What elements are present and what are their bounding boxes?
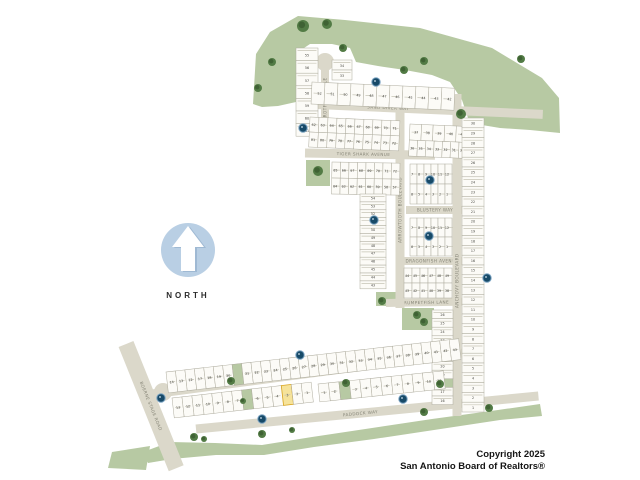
lot-number: 67 (356, 125, 360, 129)
lot-number: 72 (392, 141, 396, 145)
lot-number: 26 (471, 161, 475, 165)
lot-number: 24 (273, 368, 278, 372)
lot-number: 7 (472, 347, 474, 351)
lot-number: 45 (413, 274, 417, 278)
lot-number: 8 (418, 172, 420, 176)
lot-number: 44 (371, 275, 375, 279)
map-pin-highlight (260, 417, 262, 419)
lot-number: 63 (341, 184, 345, 188)
lot-number: 45 (408, 96, 412, 100)
lot-number: 45 (371, 267, 375, 271)
lot-number: 6 (411, 192, 413, 196)
lot-number: 1 (306, 391, 309, 395)
lot-number: 43 (453, 348, 458, 352)
lot-number: 3 (355, 387, 358, 391)
lot-number: 62 (350, 185, 354, 189)
lot-number: 2 (439, 192, 441, 196)
lot-number: 18 (207, 376, 212, 380)
lot-number: 73 (383, 141, 387, 145)
lot-number: 42 (443, 349, 448, 353)
lot-number: 29 (320, 363, 325, 367)
tree-icon (421, 319, 425, 323)
tree-icon (314, 167, 320, 173)
lot-number: 64 (329, 124, 333, 128)
street-label-trumpetfish-lane: TRUMPETFISH LANE (400, 299, 449, 305)
lot-number: 16 (440, 399, 444, 403)
copyright-line1: Copyright 2025 (400, 449, 545, 461)
lot-number: 41 (434, 350, 439, 354)
lot-number: 37 (414, 130, 418, 134)
lot-number: 11 (471, 308, 475, 312)
lot-number: 49 (356, 93, 360, 97)
lot-number: 34 (368, 357, 373, 361)
lot-number: 39 (415, 352, 420, 356)
tree-icon (241, 399, 244, 402)
subdivision-plat-map: SAND DIVER WAYTIGER SHARK AVENUEBLUSTERY… (0, 0, 640, 480)
block-east-column: 3029282726252423222120191817161514131211… (462, 118, 484, 412)
block-sand-diver-south: 6263646566676869707181807978777675747372 (309, 117, 400, 151)
lot-number: 5 (472, 367, 474, 371)
lot-number: 58 (384, 185, 388, 189)
lot-number: 22 (471, 200, 475, 204)
lot-number: 48 (369, 94, 373, 98)
lot-number: 42 (447, 97, 451, 101)
tree-icon (437, 381, 441, 385)
lot-number: 24 (440, 330, 444, 334)
lot-number: 79 (329, 139, 333, 143)
lot-number: 44 (405, 274, 409, 278)
map-pin-highlight (159, 396, 161, 398)
lot-number: 40 (449, 132, 453, 136)
lot-number: 25 (283, 367, 288, 371)
lot-number: 16 (471, 259, 475, 263)
greenspace-area (108, 446, 150, 470)
tree-icon (401, 67, 405, 71)
lot-number: 30 (471, 122, 475, 126)
tree-icon (299, 22, 306, 29)
lot-number: 57 (392, 185, 396, 189)
lot-number: 8 (418, 226, 420, 230)
tree-icon (457, 110, 463, 116)
lot-number: 8 (407, 382, 410, 386)
lot-number: 58 (305, 91, 309, 95)
lot-number: 6 (411, 245, 413, 249)
tree-icon (228, 378, 232, 382)
lot-number: 69 (367, 169, 371, 173)
lot-number: 77 (347, 139, 351, 143)
lot-number: 17 (440, 390, 444, 394)
tree-icon (340, 45, 344, 49)
lot-number: 13 (179, 379, 184, 383)
lot-number: 63 (320, 123, 324, 127)
lot-number: 40 (424, 351, 429, 355)
lot-number: 7 (411, 172, 413, 176)
copyright-notice: Copyright 2025 San Antonio Board of Real… (400, 449, 545, 472)
map-pin-marker (425, 232, 433, 240)
street-label-blustery-way: BLUSTERY WAY (417, 208, 453, 213)
map-pin-marker (399, 395, 407, 403)
lot-number: 44 (421, 96, 425, 100)
lot-number: 5 (375, 385, 378, 389)
lot-number: 50 (371, 228, 375, 232)
lot-number: 6 (256, 397, 259, 401)
lot-number: 66 (347, 124, 351, 128)
lot-number: 29 (471, 131, 475, 135)
map-pin-highlight (427, 234, 429, 236)
lot-number: 70 (376, 169, 380, 173)
lot-number: 52 (317, 92, 321, 96)
lot-number: 3 (286, 393, 289, 397)
lot-number: 4 (472, 376, 474, 380)
lot-number: 9 (472, 327, 474, 331)
lot-number: 3 (432, 192, 434, 196)
tree-icon (421, 58, 425, 62)
street-label-anchovy-boulevard: ANCHOVY BOULEVARD (455, 253, 460, 308)
lot-number: 74 (374, 141, 378, 145)
lot-number: 9 (425, 172, 427, 176)
map-pin-highlight (428, 178, 430, 180)
lot-number: 31 (339, 361, 344, 365)
lot-number: 56 (305, 66, 309, 70)
lot-number: 75 (365, 140, 369, 144)
lot-number: 62 (311, 123, 315, 127)
lot-number: 2 (439, 245, 441, 249)
lot-number: 57 (305, 79, 309, 83)
lot-number: 48 (437, 274, 441, 278)
lot-number: 14 (471, 278, 475, 282)
lot-number: 65 (338, 124, 342, 128)
lot-number: 12 (471, 298, 475, 302)
lot-number: 7 (411, 226, 413, 230)
lot-number: 61 (358, 185, 362, 189)
lot-number: 65 (333, 168, 337, 172)
lot-number: 33 (435, 147, 439, 151)
lot-number: 49 (445, 274, 449, 278)
block-east-upper: 373839404136353433323130 (409, 124, 468, 159)
lot-number: 10 (431, 226, 435, 230)
lot-number: 47 (429, 274, 433, 278)
lot-number: 7 (396, 383, 399, 387)
map-pin-highlight (301, 126, 303, 128)
lot-number: 25 (440, 321, 444, 325)
lot-number: 54 (371, 196, 375, 200)
lot-number: 69 (374, 126, 378, 130)
lot-number: 39 (437, 289, 441, 293)
lot-number: 28 (311, 364, 316, 368)
map-pin-highlight (372, 218, 374, 220)
map-pin-highlight (485, 276, 487, 278)
north-arrow-icon (158, 222, 218, 282)
north-label: NORTH (158, 291, 218, 300)
plat-map-image: SAND DIVER WAYTIGER SHARK AVENUEBLUSTERY… (0, 0, 640, 480)
tree-icon (323, 20, 329, 26)
lot-number: 6 (472, 357, 474, 361)
lot-number: 23 (471, 190, 475, 194)
lot-number: 23 (264, 369, 269, 373)
street-label-dragonfish-avenue: DRAGONFISH AVENUE (406, 259, 459, 264)
lot-number: 46 (421, 274, 425, 278)
lot-number: 31 (452, 148, 456, 152)
lot-number: 14 (169, 380, 174, 384)
lot-number: 42 (413, 289, 417, 293)
tree-icon (486, 405, 490, 409)
map-pin-highlight (401, 397, 403, 399)
lot-number: 43 (371, 283, 375, 287)
lot-number: 2 (296, 392, 299, 396)
map-pin-highlight (374, 80, 376, 82)
tree-icon (518, 56, 522, 60)
lot-number: 3 (472, 386, 474, 390)
lot-number: 30 (330, 362, 335, 366)
lot-number: 36 (386, 355, 391, 359)
lot-number: 68 (365, 125, 369, 129)
lot-number: 70 (383, 126, 387, 130)
block-paddock-north-row: 1234567891011 (318, 371, 445, 402)
lot-number: 68 (359, 169, 363, 173)
lot-number: 71 (392, 126, 396, 130)
map-pin-marker (426, 176, 434, 184)
lot-number: 76 (356, 140, 360, 144)
tree-icon (414, 312, 418, 316)
tree-icon (421, 409, 425, 413)
lot-number: 35 (418, 147, 422, 151)
cul-de-sac (316, 53, 334, 71)
lot-number: 24 (471, 180, 475, 184)
lot-number: 59 (375, 185, 379, 189)
lot-number: 12 (445, 226, 449, 230)
lot-number: 1 (323, 391, 326, 395)
lot-number: 34 (340, 64, 344, 68)
lot-number: 12 (186, 404, 191, 408)
lot-number: 47 (371, 252, 375, 256)
map-pin-marker (258, 415, 266, 423)
lot-number: 9 (417, 381, 420, 385)
lot-number: 51 (330, 92, 334, 96)
tree-icon (343, 380, 347, 384)
map-pin-marker (372, 78, 380, 86)
lot-number: 10 (206, 402, 211, 406)
block-parrotfish-east: 3433 (332, 60, 352, 80)
lot-number: 43 (434, 97, 438, 101)
lot-number: 19 (217, 375, 222, 379)
lot-number: 78 (338, 139, 342, 143)
lot-number: 53 (371, 204, 375, 208)
north-compass: NORTH (158, 222, 218, 300)
lot-number: 32 (349, 360, 354, 364)
lot-number: 46 (395, 95, 399, 99)
lot-number: 39 (437, 132, 441, 136)
lot-number: 27 (302, 365, 307, 369)
map-pin-marker (296, 351, 304, 359)
lot-number: 81 (311, 138, 315, 142)
lot-number: 4 (425, 192, 427, 196)
lot-number: 36 (410, 146, 414, 150)
tree-icon (255, 85, 259, 89)
lot-number: 19 (471, 229, 475, 233)
lot-number: 28 (471, 141, 475, 145)
lot-number: 38 (426, 131, 430, 135)
lot-number: 9 (425, 226, 427, 230)
block-dragonfish-south: 444546474849434241403938 (404, 268, 452, 298)
lot-number: 5 (418, 245, 420, 249)
lot-number: 71 (384, 169, 388, 173)
tree-icon (379, 298, 383, 302)
tree-icon (202, 437, 205, 440)
lot-number: 5 (418, 192, 420, 196)
lot-number: 7 (236, 399, 239, 403)
tree-icon (269, 59, 273, 63)
lot-number: 12 (445, 172, 449, 176)
lot-number: 17 (471, 249, 475, 253)
lot-number: 1 (446, 192, 448, 196)
lot-number: 25 (471, 171, 475, 175)
lot-number: 34 (427, 147, 431, 151)
lot-number: 18 (471, 239, 475, 243)
map-pin-highlight (298, 353, 300, 355)
lot-number: 4 (425, 245, 427, 249)
lot-number: 50 (343, 93, 347, 97)
lot-number: 41 (421, 289, 425, 293)
lot-number: 72 (393, 169, 397, 173)
lot-number: 21 (471, 210, 475, 214)
lot-number: 4 (276, 394, 279, 398)
lot-number: 21 (245, 371, 250, 375)
lot-number: 80 (320, 138, 324, 142)
lot-number: 1 (472, 406, 474, 410)
lot-number: 11 (438, 172, 442, 176)
lot-number: 38 (445, 289, 449, 293)
lot-number: 17 (198, 377, 203, 381)
lot-number: 12 (188, 378, 193, 382)
block-arrowtooth-west: 545352515049484746454443 (360, 194, 386, 289)
tree-icon (259, 431, 263, 435)
lot-number: 20 (471, 220, 475, 224)
lot-number: 40 (429, 289, 433, 293)
lot-number: 9 (217, 401, 220, 405)
map-pin-marker (483, 274, 491, 282)
lot-number: 38 (405, 353, 410, 357)
lot-number: 66 (342, 168, 346, 172)
lot-number: 13 (471, 288, 475, 292)
lot-number: 32 (443, 148, 447, 152)
lot-number: 48 (371, 244, 375, 248)
lot-number: 8 (227, 400, 230, 404)
lot-number: 20 (440, 364, 444, 368)
lot-number: 10 (471, 318, 475, 322)
lot-number: 60 (305, 117, 309, 121)
lot-number: 55 (305, 54, 309, 58)
map-pin-marker (299, 124, 307, 132)
lot-number: 27 (471, 151, 475, 155)
lot-number: 13 (176, 405, 181, 409)
tree-icon (290, 428, 293, 431)
lot-number: 3 (432, 245, 434, 249)
lot-number: 4 (365, 386, 368, 390)
lot-number: 67 (350, 169, 354, 173)
tree-icon (191, 434, 195, 438)
copyright-line2: San Antonio Board of Realtors® (400, 461, 545, 473)
lot-number: 64 (333, 184, 337, 188)
lot-number: 8 (472, 337, 474, 341)
lot-number: 26 (440, 313, 444, 317)
lot-number: 46 (371, 260, 375, 264)
lot-number: 5 (266, 395, 269, 399)
lot-number: 35 (377, 356, 382, 360)
lot-number: 2 (334, 389, 337, 393)
lot-number: 60 (367, 185, 371, 189)
lot-number: 2 (472, 396, 474, 400)
lot-number: 22 (254, 370, 259, 374)
lot-number: 15 (471, 269, 475, 273)
lot-number: 47 (382, 94, 386, 98)
lot-number: 11 (196, 403, 201, 407)
street-label-tiger-shark-avenue: TIGER SHARK AVENUE (336, 151, 391, 157)
lot-number: 26 (292, 366, 297, 370)
lot-number: 33 (358, 358, 363, 362)
map-pin-marker (157, 394, 165, 402)
lot-number: 37 (396, 354, 401, 358)
lot-number: 6 (386, 384, 389, 388)
lot-number: 11 (438, 226, 442, 230)
lot-number: 33 (340, 74, 344, 78)
lot-number: 43 (405, 289, 409, 293)
lot-number: 59 (305, 104, 309, 108)
block-tiger-shark-south: 65666768697071726463626160595857 (331, 162, 400, 195)
lot-number: 1 (446, 245, 448, 249)
map-pin-marker (370, 216, 378, 224)
lot-number: 10 (427, 379, 432, 383)
lot-number: 49 (371, 236, 375, 240)
